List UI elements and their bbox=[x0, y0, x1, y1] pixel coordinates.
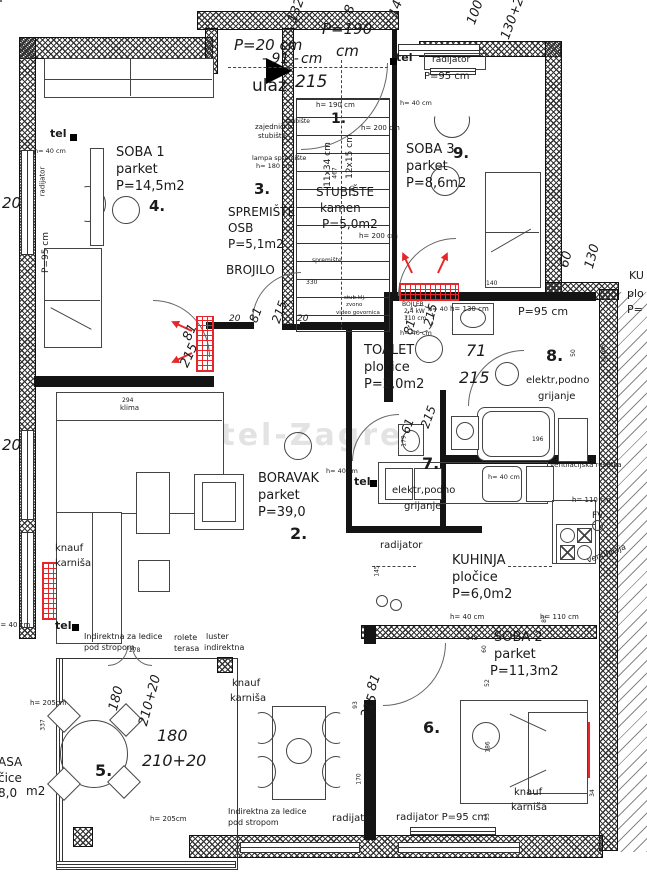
plan-label: P=14,5m2 bbox=[116, 180, 185, 193]
plan-label: stubište bbox=[286, 119, 310, 125]
plan-label: 180 bbox=[157, 728, 188, 744]
plan-label: m2 bbox=[26, 785, 45, 797]
plan-label: P=5,1m2 bbox=[228, 238, 284, 250]
wall bbox=[364, 626, 376, 644]
room-name-stubiste: STUBIŠTE bbox=[316, 186, 374, 198]
plan-label: 71 bbox=[466, 343, 486, 359]
plan-label: 20 bbox=[297, 315, 308, 324]
plan-label: P=95 cm bbox=[42, 232, 51, 273]
plan-label: indirektna bbox=[204, 644, 244, 652]
plan-label: Indirektna za ledice bbox=[228, 808, 306, 816]
room-number-2: 2. bbox=[290, 526, 307, 542]
plan-label: h= 200 cm bbox=[359, 233, 398, 240]
window bbox=[240, 842, 360, 853]
plan-label: 210+20 bbox=[142, 753, 206, 769]
plan-label: P=6,0m2 bbox=[452, 588, 512, 601]
plan-label: 170 bbox=[357, 773, 363, 784]
room-number-4: 4. bbox=[149, 199, 165, 214]
wall bbox=[346, 330, 352, 532]
plan-label: pločice bbox=[452, 571, 498, 584]
chair bbox=[322, 712, 350, 744]
tel-label: tel bbox=[354, 476, 371, 487]
entrance-label: ulaz bbox=[252, 78, 287, 95]
window bbox=[398, 842, 520, 853]
cut-room-name: KU bbox=[629, 270, 644, 281]
chair bbox=[434, 102, 470, 138]
radiator-label: radijator P=95 cm bbox=[396, 813, 487, 823]
plan-label: grijanje bbox=[538, 392, 575, 402]
room-name-soba1: SOBA 1 bbox=[116, 146, 165, 159]
plan-label: 110 cm bbox=[404, 316, 427, 322]
room-name-boravak: BORAVAK bbox=[258, 472, 319, 485]
wall bbox=[20, 38, 212, 58]
plan-label: 130 bbox=[583, 243, 602, 270]
plan-label: Indirektna za ledice bbox=[84, 633, 162, 641]
plan-label: parket bbox=[494, 648, 536, 661]
fv-symbol bbox=[592, 520, 603, 531]
plan-label: 145 bbox=[375, 565, 381, 576]
tel-outlet bbox=[370, 480, 377, 487]
plan-label: 11x34 cm bbox=[324, 142, 333, 187]
furniture-line bbox=[44, 300, 100, 301]
window bbox=[21, 430, 34, 520]
plan-label: cm bbox=[336, 44, 359, 59]
wall bbox=[34, 376, 214, 387]
plan-label: h= 190 cm bbox=[316, 102, 355, 109]
plan-label: P=95 cm bbox=[424, 72, 470, 82]
plan-label: el.trlo bbox=[602, 344, 608, 361]
plan-label: 215 bbox=[295, 74, 327, 91]
mattress bbox=[528, 712, 588, 794]
plan-label: 179 bbox=[402, 435, 408, 446]
plan-label: 215 bbox=[419, 404, 438, 430]
plan-label: luster bbox=[206, 633, 229, 641]
coffee-table bbox=[136, 472, 170, 534]
tel-label: tel bbox=[396, 52, 413, 63]
wardrobe bbox=[44, 58, 214, 98]
plan-label: spremište bbox=[312, 258, 342, 264]
plan-label: P=11,3m2 bbox=[490, 665, 559, 678]
furniture-line bbox=[130, 58, 131, 96]
plan-label: P=95 cm bbox=[518, 306, 568, 317]
wall bbox=[74, 828, 92, 846]
plan-label: 337 bbox=[41, 719, 47, 730]
ac-label: klima bbox=[120, 405, 139, 412]
plan-label: 20 bbox=[229, 315, 240, 324]
table-plate bbox=[286, 738, 312, 764]
room-number-5: 5. bbox=[95, 763, 112, 779]
plan-label: 81 bbox=[365, 673, 383, 693]
cabinet bbox=[558, 418, 588, 462]
plan-label: P=8,6m2 bbox=[406, 177, 466, 190]
furniture-line bbox=[56, 420, 222, 421]
plan-label: karniša bbox=[230, 694, 266, 704]
plan-label: elektr,podno bbox=[526, 376, 589, 386]
wall bbox=[346, 526, 482, 533]
armchair-seat bbox=[202, 482, 236, 522]
wall bbox=[600, 290, 617, 850]
furniture-line bbox=[92, 512, 93, 642]
plan-label: h= 40 cm bbox=[326, 468, 358, 475]
plan-label: 343 bbox=[466, 636, 477, 642]
plan-label: cm bbox=[301, 52, 322, 66]
plan-label: 34 bbox=[590, 789, 596, 797]
furniture-line bbox=[485, 232, 539, 233]
chair bbox=[322, 756, 350, 788]
plan-label: stub.klj. bbox=[344, 296, 366, 302]
plan-label: h= 205cm bbox=[150, 816, 187, 823]
plan-label: grijanje bbox=[404, 502, 441, 512]
wall bbox=[392, 30, 397, 292]
plan-label: parket bbox=[406, 160, 448, 173]
plan-label: 170 bbox=[351, 185, 357, 196]
outside-area bbox=[617, 292, 647, 852]
lamp-symbol bbox=[112, 196, 140, 224]
plan-label: 20 bbox=[2, 438, 21, 453]
lamp-symbol bbox=[415, 335, 443, 363]
window bbox=[21, 532, 34, 628]
plan-label: knauf bbox=[232, 679, 260, 689]
lamp-symbol bbox=[284, 432, 312, 460]
plan-label: 12x15 cm bbox=[346, 134, 355, 179]
window bbox=[21, 150, 34, 255]
radiator-label: radijator bbox=[380, 541, 422, 551]
meter-label: BROJILO bbox=[226, 264, 275, 276]
plan-label: 52 bbox=[485, 679, 491, 687]
sink bbox=[482, 466, 522, 502]
radiator-red bbox=[196, 316, 214, 372]
socket-row bbox=[508, 566, 552, 567]
radiator-red bbox=[399, 283, 459, 301]
room-name-toalet: TOALET bbox=[364, 344, 414, 357]
plan-label: 60 bbox=[482, 645, 488, 653]
plan-label: knauf bbox=[514, 788, 542, 798]
tel-outlet bbox=[70, 134, 77, 141]
plan-label: h= 40 cm bbox=[488, 474, 520, 481]
burner bbox=[560, 545, 575, 560]
plan-label: karniša bbox=[511, 803, 547, 813]
bathtub-inner bbox=[482, 411, 550, 457]
room-number-8: 8. bbox=[546, 348, 563, 364]
tel-outlet bbox=[72, 624, 79, 631]
room-name-soba3: SOBA 3 bbox=[406, 143, 455, 156]
plan-label: kamen bbox=[320, 202, 361, 214]
dim-parapet: P=190 bbox=[322, 22, 372, 37]
plan-label: terasa bbox=[174, 645, 199, 653]
plan-label: h= 110 cm bbox=[572, 497, 611, 504]
radiator-label: radijator bbox=[332, 814, 374, 824]
plan-label: 130+20 bbox=[499, 0, 529, 41]
plan-label: video govornica bbox=[336, 311, 380, 317]
washing-machine-door bbox=[456, 422, 474, 440]
plan-label: P=5,0m2 bbox=[322, 218, 378, 230]
plan-label: 215 bbox=[359, 693, 380, 721]
switch-symbol bbox=[390, 599, 402, 611]
plan-label: h= 180 cm bbox=[256, 163, 292, 170]
plan-label: FV bbox=[592, 512, 603, 521]
switch-symbol bbox=[376, 595, 388, 607]
plan-label: zajedničko bbox=[255, 124, 292, 131]
plan-label: rolete bbox=[174, 634, 197, 642]
chair bbox=[248, 756, 276, 788]
burner bbox=[560, 528, 575, 543]
plan-label: 196 bbox=[532, 437, 543, 443]
plan-label: ventilacijska rešetka bbox=[550, 462, 622, 469]
plan-label: 50 bbox=[571, 349, 577, 357]
plan-label: parket bbox=[258, 489, 300, 502]
room-number-7: 7. bbox=[422, 456, 439, 472]
plan-label: pločice bbox=[364, 361, 410, 374]
plan-label: 278 bbox=[129, 648, 140, 654]
tel-label: tel bbox=[50, 128, 67, 139]
burner bbox=[577, 528, 592, 543]
plan-label: h= 130 cm bbox=[450, 306, 489, 313]
radiator bbox=[410, 827, 496, 835]
plan-label: 60 bbox=[558, 250, 575, 269]
chair bbox=[248, 712, 276, 744]
plan-label: parket bbox=[116, 163, 158, 176]
plan-label: 215 bbox=[459, 370, 490, 386]
dish-rack bbox=[526, 466, 554, 502]
plan-label: 93 bbox=[353, 701, 359, 709]
plan-label: 100 bbox=[465, 0, 486, 26]
room-number-9: 9. bbox=[453, 146, 469, 161]
plan-label: h= 40 cm bbox=[400, 100, 432, 107]
bed bbox=[485, 172, 541, 288]
lamp-symbol bbox=[495, 362, 519, 386]
plan-label: h= 205cm bbox=[30, 700, 67, 707]
furniture-line bbox=[44, 79, 212, 80]
room-number-6: 6. bbox=[423, 720, 440, 736]
tel-label: tel bbox=[55, 620, 72, 631]
plan-label: OSB bbox=[228, 222, 253, 234]
plan-label: 8,0 bbox=[0, 787, 17, 799]
plan-label: elektr,podno bbox=[392, 486, 455, 496]
plan-label: karniša bbox=[55, 559, 91, 569]
room-name-kuhinja: KUHINJA bbox=[452, 554, 506, 567]
cut-room-name-terasa: ASA bbox=[0, 756, 22, 768]
plan-label: P=39,0 bbox=[258, 506, 306, 519]
plan-label: plo bbox=[627, 288, 644, 299]
plan-label: h= 40 cm bbox=[400, 330, 432, 337]
plan-label: h= 40 cm bbox=[0, 622, 30, 629]
side-table bbox=[138, 560, 170, 592]
plan-label: h= 40 cm bbox=[450, 614, 484, 621]
room-number-1: 1. bbox=[331, 112, 346, 126]
plan-label: 20 bbox=[2, 196, 21, 211]
wall bbox=[218, 658, 232, 672]
plan-label: 467 bbox=[333, 167, 339, 178]
plan-label: lampa spremište bbox=[252, 155, 306, 162]
dim-door-width: - 91 - bbox=[262, 52, 299, 66]
plan-label: zvono bbox=[346, 303, 362, 309]
plan-label: čice bbox=[0, 772, 22, 784]
wall bbox=[362, 626, 596, 638]
plan-label: stubište bbox=[258, 133, 286, 140]
radiator-label: radijator bbox=[432, 56, 470, 65]
plan-label: 81 bbox=[542, 615, 548, 623]
plan-label: h= 40 cm bbox=[34, 148, 66, 155]
plan-label: pod stropom bbox=[84, 644, 135, 652]
plan-label: 186 bbox=[486, 741, 492, 752]
room-name-soba2: SOBA 2 bbox=[494, 631, 543, 644]
plan-label: pod stropom bbox=[228, 819, 279, 827]
plan-label: knauf bbox=[55, 544, 83, 554]
plan-label: 53 bbox=[485, 813, 491, 821]
desk bbox=[90, 148, 104, 246]
plan-label: P=2,0m2 bbox=[364, 378, 424, 391]
floor-plan: Kastel-Zagreb bbox=[0, 0, 647, 874]
x bbox=[0, 0, 2, 2]
window bbox=[56, 861, 236, 868]
plan-label: 140 bbox=[486, 281, 497, 287]
plan-label: P= bbox=[627, 304, 643, 315]
plan-label: h= 200 cm bbox=[361, 125, 400, 132]
room-name-spremiste: SPREMIŠTE bbox=[228, 206, 295, 218]
bed bbox=[44, 248, 102, 348]
radiator-label: radijator bbox=[39, 167, 46, 197]
room-number-3: 3. bbox=[254, 182, 270, 197]
plan-label: 330 bbox=[306, 280, 317, 286]
